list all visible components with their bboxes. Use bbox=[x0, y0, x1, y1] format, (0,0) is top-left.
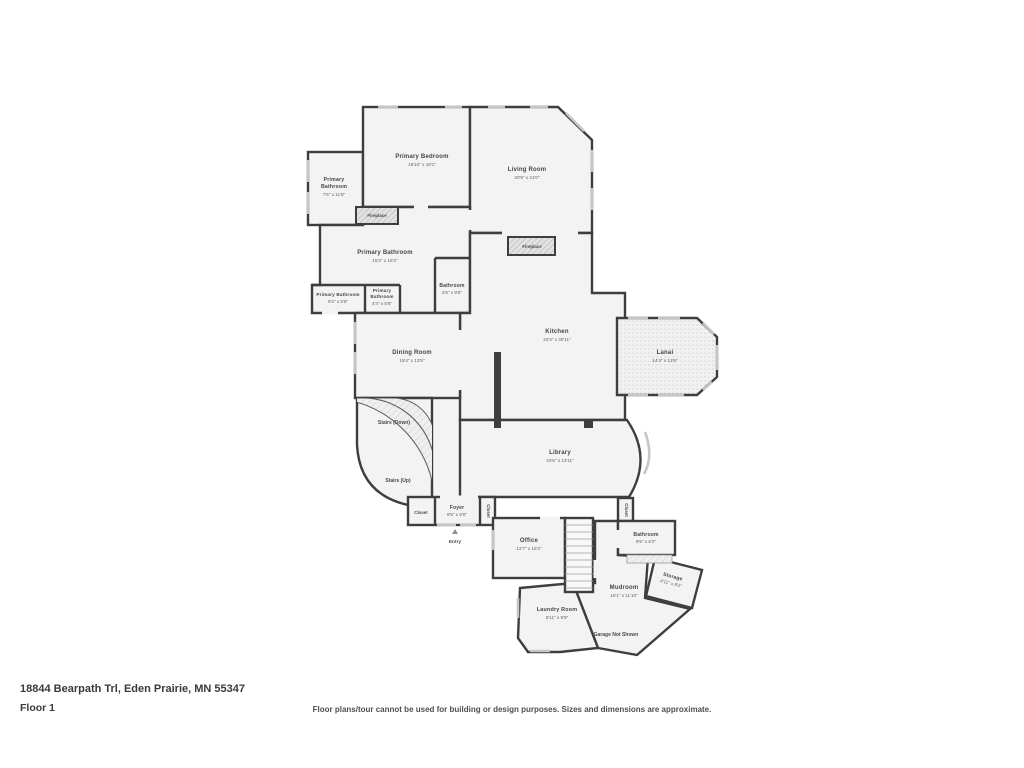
living-room-label: Living Room bbox=[508, 167, 547, 173]
bathroom-upper-dims: 5'5" x 9'6" bbox=[442, 290, 462, 295]
mudroom-dims: 16'1" x 11'10" bbox=[610, 593, 638, 598]
primary-bathroom-tl-label-2: Bathroom bbox=[321, 184, 347, 190]
floor-plan-page: Primary Bathroom 7'6" x 11'8" Primary Be… bbox=[0, 0, 1024, 768]
library-wall-pier bbox=[584, 419, 593, 428]
floor-plan-drawing: Primary Bathroom 7'6" x 11'8" Primary Be… bbox=[0, 0, 1024, 768]
bathroom-lower-dims: 9'5" x 6'2" bbox=[636, 539, 656, 544]
closet-foyer-right-label: Closet bbox=[486, 504, 491, 518]
mudroom-step bbox=[627, 555, 672, 563]
kitchen-dims: 22'3" x 30'11" bbox=[543, 337, 571, 342]
primary-bathroom-mid-label-2: Bathroom bbox=[370, 294, 393, 299]
lanai-walls bbox=[617, 318, 717, 395]
office-dims: 12'7" x 15'3" bbox=[516, 546, 542, 551]
bathroom-lower-walls bbox=[618, 521, 675, 555]
primary-bathroom-mid-dims: 4'4" x 5'8" bbox=[372, 301, 392, 306]
primary-bathroom-tl-label-1: Primary bbox=[324, 177, 345, 183]
laundry-room-dims: 8'11" x 9'9" bbox=[546, 615, 569, 620]
fireplace-living-label: Fireplace bbox=[522, 244, 542, 249]
hallway-area bbox=[432, 398, 460, 497]
disclaimer-text: Floor plans/tour cannot be used for buil… bbox=[0, 705, 1024, 714]
stairs-down-label: Stairs (Down) bbox=[378, 420, 411, 426]
closet-hall-label: Closet bbox=[624, 503, 629, 517]
primary-bathroom-main-dims: 15'2" x 16'3" bbox=[372, 258, 398, 263]
primary-bathroom-main-label: Primary Bathroom bbox=[357, 250, 413, 256]
stairs-up-label: Stairs (Up) bbox=[385, 478, 411, 484]
entry-label: Entry bbox=[449, 539, 462, 545]
foyer-label: Foyer bbox=[450, 505, 465, 511]
room-shapes bbox=[308, 107, 717, 655]
bathroom-upper-label: Bathroom bbox=[439, 283, 465, 289]
dining-room-label: Dining Room bbox=[392, 350, 432, 356]
fireplace-bedroom-label: Fireplace bbox=[367, 213, 387, 218]
primary-bathroom-left-label: Primary Bathroom bbox=[316, 292, 359, 297]
primary-bathroom-mid-label-1: Primary bbox=[373, 288, 392, 293]
library-dims: 24'5" x 13'11" bbox=[546, 458, 574, 463]
mudroom-label: Mudroom bbox=[610, 585, 639, 591]
living-room-dims: 20'9" x 21'0" bbox=[514, 175, 540, 180]
primary-bedroom-dims: 18'10" x 18'1" bbox=[408, 162, 436, 167]
property-address: 18844 Bearpath Trl, Eden Prairie, MN 553… bbox=[20, 683, 245, 695]
office-label: Office bbox=[520, 538, 539, 544]
foyer-dims: 8'5" x 6'8" bbox=[447, 512, 467, 517]
dining-room-dims: 19'4" x 13'5" bbox=[399, 358, 425, 363]
entry-direction-icon bbox=[452, 529, 458, 534]
kitchen-label: Kitchen bbox=[545, 329, 569, 335]
laundry-room-label: Laundry Room bbox=[537, 607, 577, 613]
lanai-dims: 14'4" x 12'8" bbox=[652, 358, 678, 363]
garage-note-label: Garage Not Shown bbox=[594, 632, 639, 638]
lanai-label: Lanai bbox=[657, 350, 674, 356]
primary-bathroom-tl-dims: 7'6" x 11'8" bbox=[323, 192, 346, 197]
kitchen-walls bbox=[460, 233, 625, 420]
kitchen-wall-pier bbox=[494, 352, 501, 428]
bathroom-lower-label: Bathroom bbox=[633, 532, 659, 538]
closet-foyer-left-label: Closet bbox=[414, 510, 428, 515]
primary-bathroom-left-dims: 9'2" x 5'8" bbox=[328, 299, 348, 304]
primary-bedroom-label: Primary Bedroom bbox=[395, 154, 448, 160]
library-label: Library bbox=[549, 450, 571, 456]
